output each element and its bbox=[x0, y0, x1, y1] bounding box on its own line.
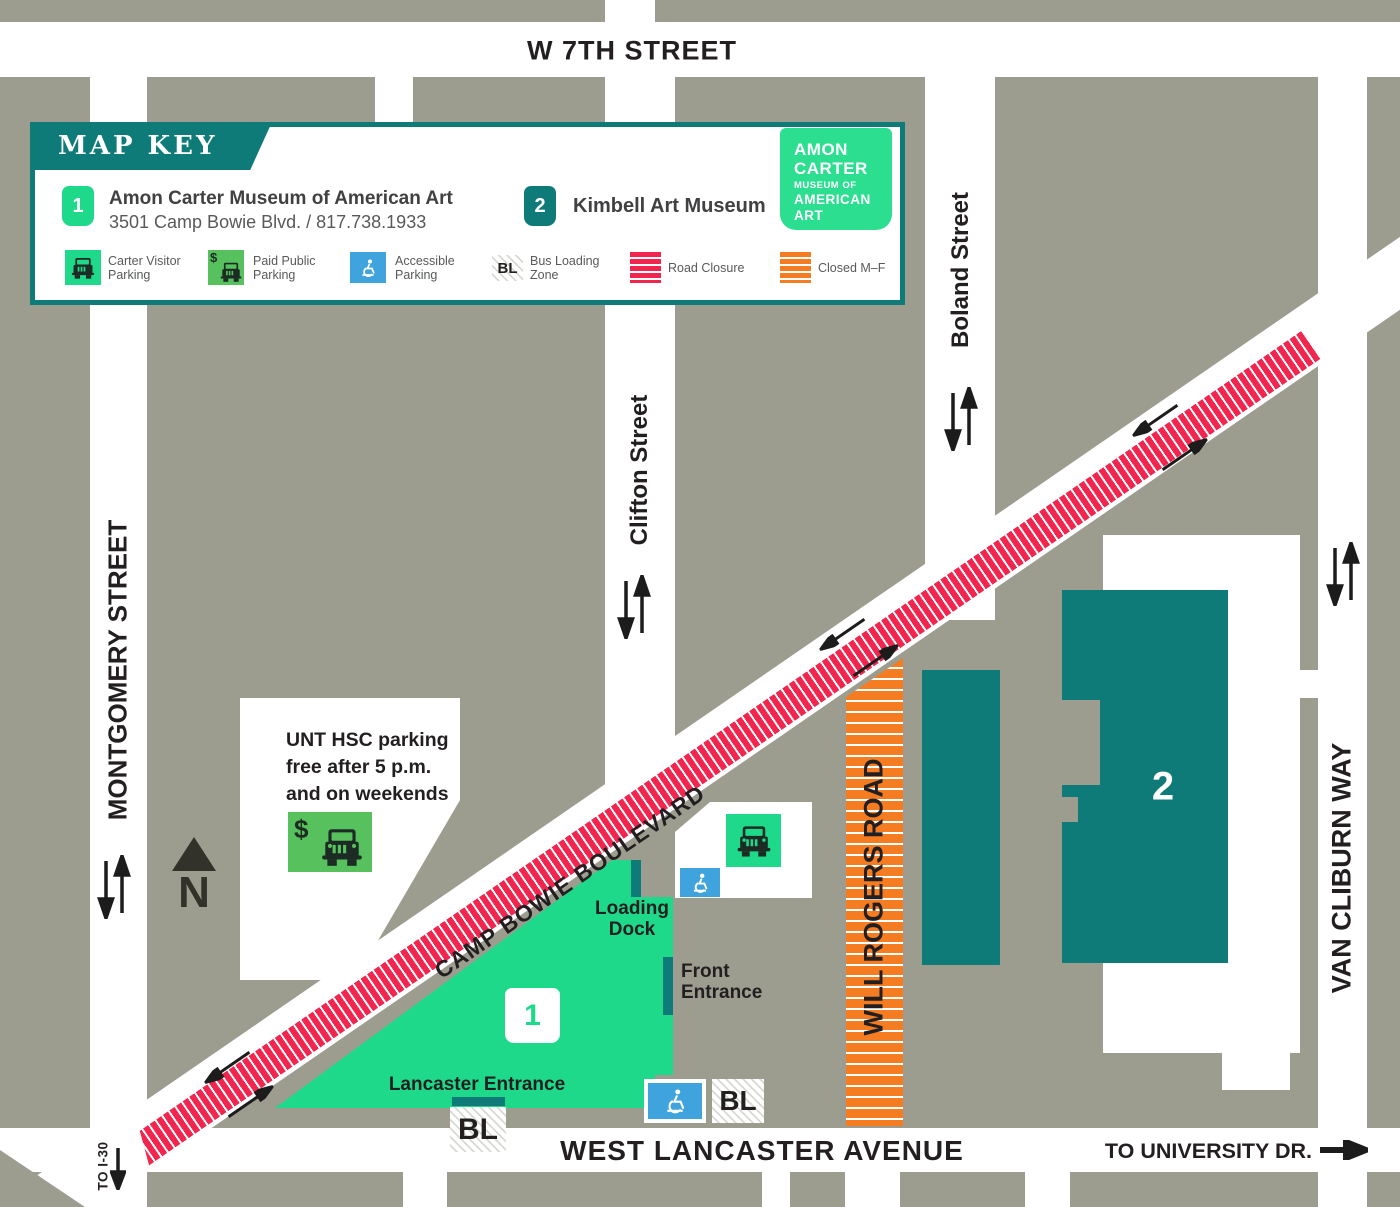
lancaster-entrance-marker bbox=[452, 1097, 505, 1106]
road-south-stub-1 bbox=[403, 1172, 447, 1207]
accessible-parking-icon-small bbox=[680, 868, 720, 897]
road-clifton-north-stub bbox=[605, 0, 655, 22]
montgomery-street-label: MONTGOMERY STREET bbox=[103, 520, 134, 820]
two-way-arrows-clifton bbox=[616, 575, 652, 639]
two-way-arrows-boland bbox=[943, 387, 979, 451]
loading-dock-marker bbox=[631, 860, 641, 897]
building2-number: 2 bbox=[1152, 765, 1174, 810]
north-letter: N bbox=[170, 871, 218, 915]
boland-street-label: Boland Street bbox=[947, 192, 975, 348]
dollar-icon: $ bbox=[294, 814, 308, 845]
map-key-title: MAP KEY bbox=[30, 131, 218, 161]
kimbell-plaza-connector bbox=[1300, 670, 1318, 698]
campus-map: 1 2 W 7TH STREET WEST LANCASTER AVENUE M… bbox=[0, 0, 1400, 1207]
legend-accessible: AccessibleParking bbox=[395, 254, 455, 282]
paid-public-parking-icon: $ bbox=[208, 250, 244, 285]
to-university-arrow-icon bbox=[1318, 1140, 1368, 1160]
kimbell-plaza-south-strip bbox=[1222, 1053, 1290, 1090]
key-badge-2: 2 bbox=[524, 186, 556, 226]
key-item-1: Amon Carter Museum of American Art 3501 … bbox=[109, 188, 453, 233]
will-rogers-road-label: WILL ROGERS ROAD bbox=[859, 758, 890, 1035]
amon-carter-logo: AMON CARTER MUSEUM OF AMERICAN ART bbox=[780, 128, 892, 230]
van-cliburn-way-label: VAN CLIBURN WAY bbox=[1327, 743, 1358, 994]
map-key-banner: MAP KEY bbox=[30, 122, 272, 170]
key-item-1-subtitle: 3501 Camp Bowie Blvd. / 817.738.1933 bbox=[109, 212, 453, 233]
front-entrance-label: Front Entrance bbox=[681, 961, 762, 1003]
north-compass: N bbox=[170, 837, 218, 915]
key-badge-1: 1 bbox=[62, 186, 94, 226]
building1-badge: 1 bbox=[505, 988, 560, 1043]
accessible-parking-key-icon bbox=[350, 252, 386, 283]
paid-public-parking-icon-map: $ bbox=[288, 812, 372, 872]
road-van-cliburn-way bbox=[1318, 77, 1367, 1207]
building-kimbell-art-museum bbox=[1062, 590, 1228, 963]
map-key-panel: MAP KEY 1 Amon Carter Museum of American… bbox=[30, 122, 905, 305]
clifton-street-label: Clifton Street bbox=[626, 395, 654, 546]
two-way-arrows-montgomery bbox=[96, 855, 132, 919]
front-entrance-marker bbox=[663, 957, 673, 1015]
bus-loading-zone-key-icon: BL bbox=[492, 255, 523, 281]
key-item-1-title: Amon Carter Museum of American Art bbox=[109, 188, 453, 210]
road-closure-key-icon bbox=[630, 252, 661, 283]
accessible-parking-icon bbox=[648, 1083, 702, 1119]
west-lancaster-label: WEST LANCASTER AVENUE bbox=[560, 1135, 964, 1167]
bus-loading-badge-lancaster: BL bbox=[450, 1107, 506, 1152]
to-i30-arrow-icon bbox=[110, 1146, 126, 1190]
legend-paid-public: Paid PublicParking bbox=[253, 254, 316, 282]
north-arrow-icon bbox=[172, 837, 216, 871]
road-side-street bbox=[375, 77, 413, 122]
road-south-stub-2 bbox=[762, 1172, 790, 1207]
bus-loading-badge-museum: BL bbox=[712, 1079, 764, 1123]
to-i30-label: TO I-30 bbox=[96, 1141, 111, 1190]
road-south-stub-4 bbox=[1025, 1172, 1070, 1207]
legend-closed-mf: Closed M–F bbox=[818, 261, 885, 275]
closed-mf-key-icon bbox=[780, 252, 811, 283]
key-item-2-title: Kimbell Art Museum bbox=[573, 195, 766, 218]
building1-number: 1 bbox=[524, 999, 541, 1033]
loading-dock-label: Loading Dock bbox=[572, 898, 692, 940]
lancaster-entrance-label: Lancaster Entrance bbox=[389, 1074, 565, 1096]
two-way-arrows-van-cliburn bbox=[1325, 542, 1361, 606]
carter-visitor-parking-icon-map bbox=[726, 814, 781, 867]
to-university-label: TO UNIVERSITY DR. bbox=[1100, 1139, 1312, 1164]
building-annex bbox=[922, 670, 1000, 965]
accessible-parking-plate bbox=[644, 1079, 706, 1123]
legend-bus-loading: Bus LoadingZone bbox=[530, 254, 600, 282]
road-south-stub-3 bbox=[845, 1172, 900, 1207]
legend-carter-visitor: Carter VisitorParking bbox=[108, 254, 181, 282]
carter-visitor-parking-icon bbox=[65, 250, 101, 285]
w7th-street-label: W 7TH STREET bbox=[527, 36, 737, 67]
legend-road-closure: Road Closure bbox=[668, 261, 744, 275]
unt-parking-note: UNT HSC parking free after 5 p.m. and on… bbox=[286, 727, 449, 808]
